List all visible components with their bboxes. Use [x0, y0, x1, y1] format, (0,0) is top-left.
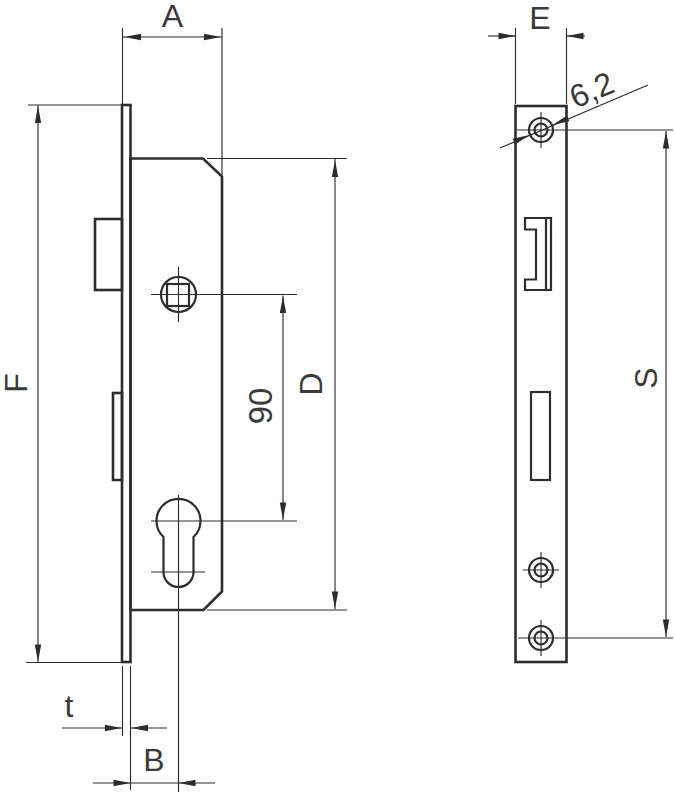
dimension-b: B — [93, 742, 215, 786]
dim-label-90: 90 — [242, 388, 279, 425]
dim-label-e: E — [529, 0, 550, 36]
faceplate-front-view — [516, 106, 567, 662]
latch-cutout — [525, 218, 551, 290]
dim-label-t: t — [65, 688, 74, 724]
lock-case-side-view — [95, 105, 297, 792]
dim-label-d: D — [293, 372, 329, 395]
dimension-a: A — [123, 0, 223, 175]
centerlines — [151, 267, 297, 792]
dimension-d: D — [207, 159, 347, 611]
dim-label-hole-diameter: 6,2 — [564, 65, 619, 116]
latch-bolt-side — [95, 219, 122, 290]
mortise-lock-drawing: A F D 90 t B — [0, 0, 675, 796]
lock-case-body — [131, 159, 223, 611]
dim-label-f: F — [0, 373, 34, 393]
dimension-f: F — [0, 105, 122, 663]
deadbolt-edge — [113, 393, 122, 480]
dim-label-a: A — [162, 0, 184, 34]
dim-label-s: S — [628, 367, 664, 388]
deadbolt-cutout — [531, 392, 550, 480]
screw-hole-middle — [523, 552, 559, 588]
dimension-s: S — [517, 130, 673, 638]
dimension-90: 90 — [242, 296, 286, 521]
technical-drawing-page: A F D 90 t B — [0, 0, 675, 796]
dim-label-b: B — [143, 742, 164, 778]
